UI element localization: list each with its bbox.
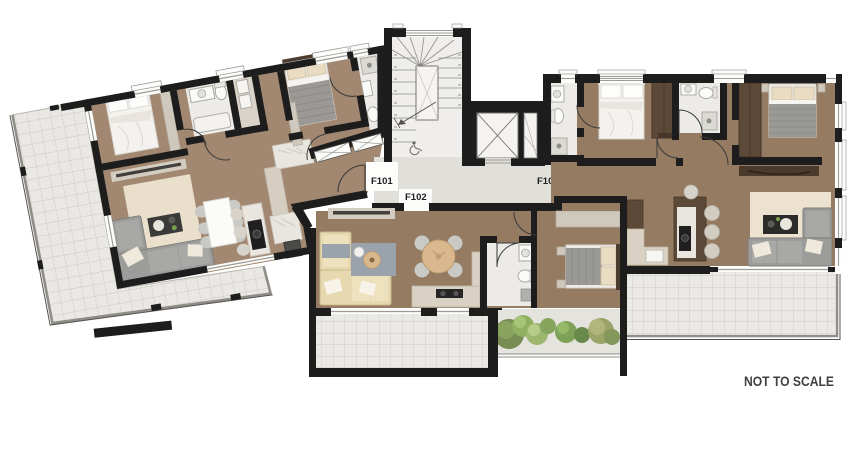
svg-text:F101: F101 xyxy=(371,176,393,187)
svg-text:NOT TO SCALE: NOT TO SCALE xyxy=(744,373,834,389)
svg-text:F102: F102 xyxy=(405,192,427,203)
